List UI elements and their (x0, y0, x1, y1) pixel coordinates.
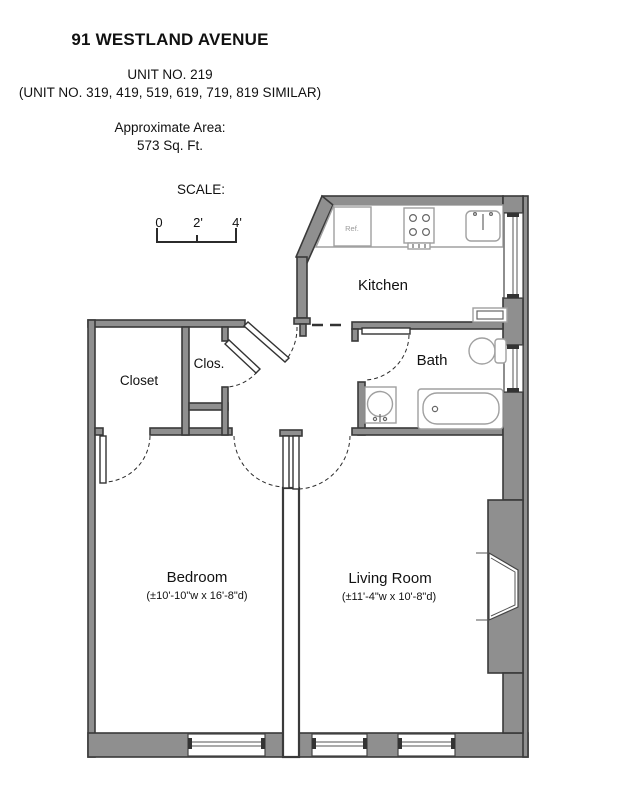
kitchen-fixtures (316, 205, 507, 322)
closet-divider-wall (182, 327, 189, 435)
kitchen-window (504, 213, 523, 298)
bedroom-door-arc (234, 436, 283, 487)
kitchen-left-wall (297, 257, 307, 318)
kitchen-top-wall (322, 196, 503, 205)
livingroom-dimensions: (±11'-4"w x 10'-8"d) (342, 591, 436, 603)
bath-label: Bath (417, 352, 448, 369)
floor-plan-page: 91 WESTLAND AVENUE UNIT NO. 219 (UNIT NO… (0, 0, 618, 800)
entry-door-leaf (244, 322, 289, 362)
kitchen-sink (466, 211, 500, 241)
bath-door-arc (366, 335, 409, 380)
closet-bottom-wall (150, 428, 232, 435)
livingroom-window-right (398, 734, 455, 756)
kitchen-left-wall-cap (294, 318, 310, 324)
scale-tick-4: 4' (232, 215, 242, 230)
kitchen-top-right-corner (503, 196, 523, 213)
bath-door-jamb (352, 329, 358, 341)
scale-bar: 0 2' 4' (155, 215, 241, 243)
kitchen-radiator (473, 308, 507, 322)
bedroom-livingroom-divider-wall (283, 488, 299, 757)
bottom-exterior-wall (88, 733, 528, 757)
bedroom-label: Bedroom (167, 569, 228, 586)
bath-left-wall (358, 382, 365, 435)
livingroom-door-leaf (293, 436, 299, 489)
left-exterior-wall (88, 320, 95, 757)
bath-door-leaf (362, 328, 410, 334)
closet-door-arc (106, 436, 150, 482)
bedroom-window (188, 734, 265, 756)
bedroom-dimensions: (±10'-10"w x 16'-8"d) (146, 590, 247, 602)
bath-sink (365, 387, 396, 423)
bath-livingroom-pier (503, 392, 523, 500)
livingroom-door-arc (299, 436, 350, 489)
livingroom-lower-pier (503, 673, 523, 733)
closet-door-jamb (95, 428, 103, 435)
floor-plan-drawing: 0 2' 4' Kitchen Bath Closet Clos. Bedroo… (0, 0, 618, 800)
closet-top-wall (88, 320, 245, 327)
bathtub (418, 389, 503, 429)
entry-door-arc (286, 327, 297, 360)
bath-window (504, 345, 523, 392)
bedroom-door-leaf (283, 436, 289, 488)
scale-tick-2: 2' (193, 215, 203, 230)
walls (88, 196, 528, 757)
closet-label: Closet (120, 373, 159, 388)
closet-door-leaf (100, 436, 106, 483)
toilet (469, 338, 506, 364)
kitchen-label: Kitchen (358, 277, 408, 294)
clos-label: Clos. (194, 356, 225, 371)
refrigerator-label: Ref. (345, 224, 359, 233)
clos-door-arc (228, 372, 257, 387)
livingroom-label: Living Room (348, 570, 431, 587)
clos-door-leaf (225, 340, 260, 373)
scale-tick-0: 0 (155, 215, 162, 230)
kitchen-left-wall-stub (300, 324, 306, 336)
clos-jamb-top (222, 327, 228, 341)
clos-jamb-bottom (222, 387, 228, 435)
stove (404, 208, 434, 249)
bedroom-livingroom-divider-cap (280, 430, 302, 436)
livingroom-window-left (312, 734, 367, 756)
windows (188, 213, 523, 756)
